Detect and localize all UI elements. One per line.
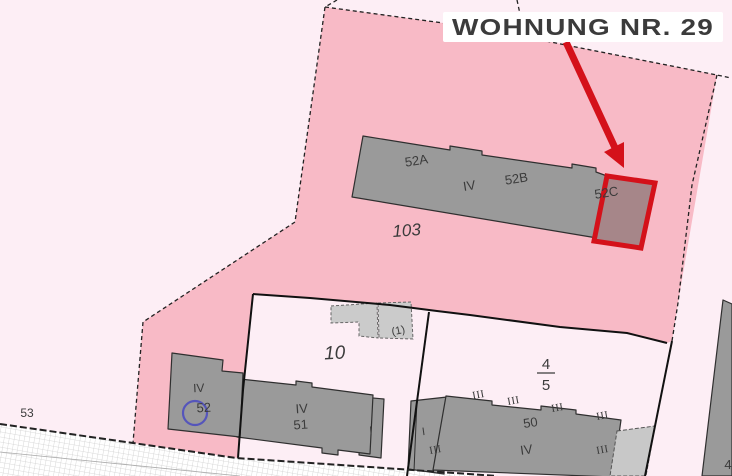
cadastral-map: 52A IV 52B 52C 103 10 (1) 4 5 53 IV 52 I…	[0, 0, 732, 476]
parcel-label-53: 53	[20, 406, 34, 420]
parcel-label-103: 103	[392, 220, 422, 241]
site-plan-canvas: 52A IV 52B 52C 103 10 (1) 4 5 53 IV 52 I…	[0, 0, 732, 476]
parcel-label-10: 10	[324, 342, 347, 364]
building-label-iv-52: IV	[193, 381, 205, 396]
building-label-50: 50	[522, 414, 538, 431]
building-label-iv-51: IV	[295, 401, 309, 417]
page-title: WOHNUNG NR. 29	[452, 14, 714, 40]
storey-mark-iii: III	[506, 394, 520, 408]
parcel-label-4: 4	[542, 356, 550, 373]
building-label-51: 51	[293, 417, 308, 433]
parcel-label-5: 5	[542, 377, 550, 394]
storey-mark-iii: III	[550, 401, 564, 415]
storey-mark-iii: III	[471, 388, 485, 402]
building-label-4: 4	[724, 457, 731, 472]
title-callout: WOHNUNG NR. 29	[443, 12, 723, 42]
building-label-iv-50: IV	[519, 441, 534, 458]
building-label-52: 52	[196, 400, 211, 416]
storey-mark-iii: III	[595, 443, 609, 457]
storey-mark-iii: III	[428, 443, 442, 457]
storey-mark-iii: III	[595, 409, 609, 423]
